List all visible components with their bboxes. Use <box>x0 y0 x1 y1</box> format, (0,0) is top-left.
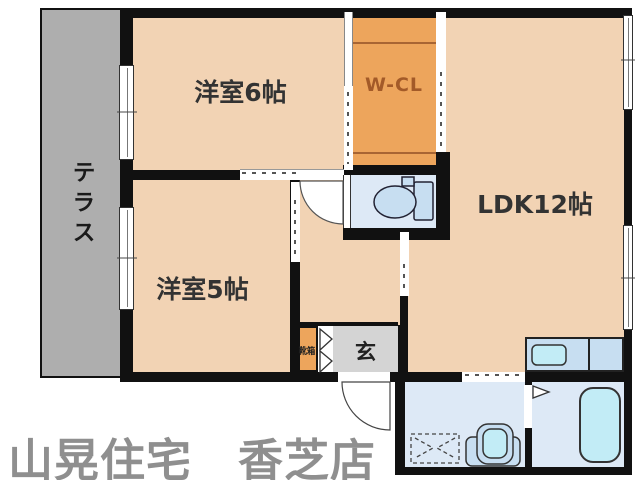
toilet-icon <box>374 177 433 220</box>
kitchen-sink-icon <box>532 345 566 365</box>
shoe-box-label: 靴箱 <box>295 344 319 357</box>
bedroom5-label: 洋室5帖 <box>130 270 275 306</box>
bedroom6-label: 洋室6帖 <box>168 73 313 109</box>
wash-basin-icon <box>466 424 520 466</box>
closet-label: W-CL <box>352 74 436 96</box>
ldk-label: LDK12帖 <box>455 185 615 221</box>
floor-plan: テラス <box>0 0 640 480</box>
front-door-swing <box>342 382 390 430</box>
entrance-label: 玄 <box>333 336 398 366</box>
bifold-door-icon <box>320 329 332 372</box>
company-name: 山晃住宅 香芝店 <box>8 424 376 480</box>
toilet-door-swing <box>300 181 343 224</box>
fixtures-layer <box>0 0 640 480</box>
bath-door-marker-icon <box>533 386 549 398</box>
washing-machine-pan-icon <box>411 434 459 463</box>
bathtub-icon <box>580 388 620 462</box>
